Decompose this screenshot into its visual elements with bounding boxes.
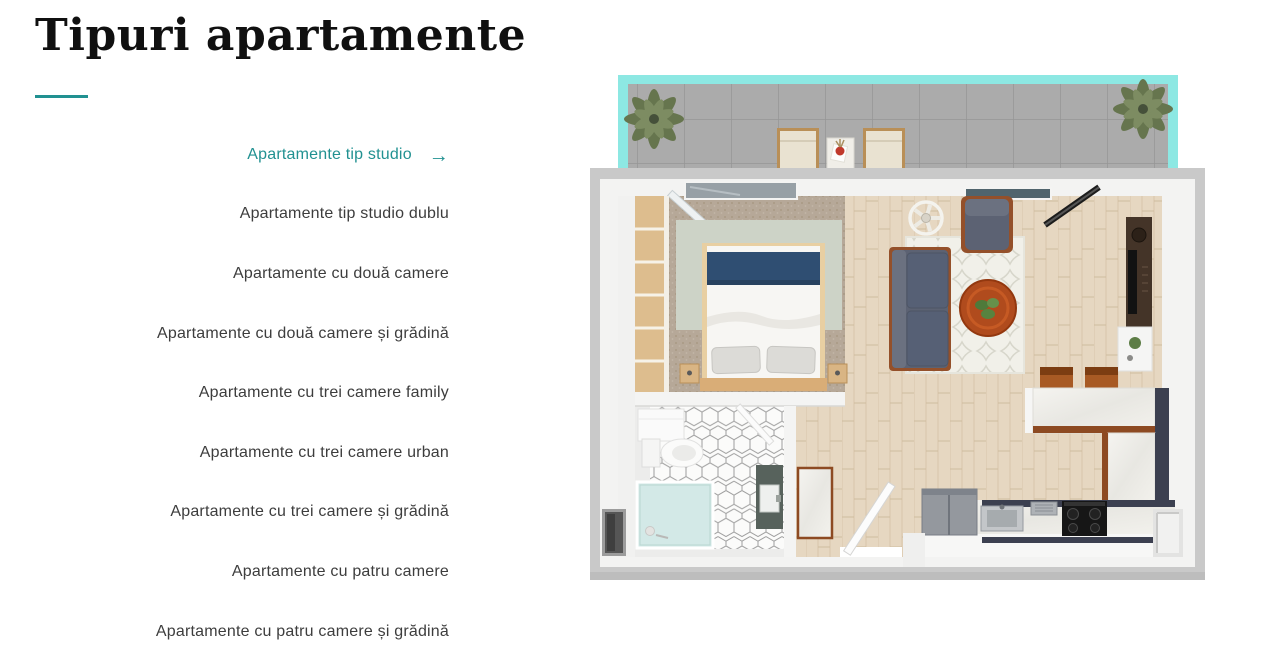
wall-niche-left — [602, 509, 626, 556]
menu-item-label: Apartamente cu trei camere și grădină — [170, 503, 449, 521]
entry-closet — [798, 468, 832, 538]
menu-item-label: Apartamente cu patru camere și grădină — [156, 623, 449, 641]
kitchen-sink — [981, 505, 1023, 532]
menu-item-studio-dublu[interactable]: Apartamente tip studio dublu — [0, 185, 449, 245]
balcony — [618, 75, 1178, 170]
balcony-table — [827, 138, 854, 170]
balcony-chair-right — [863, 128, 905, 170]
menu-item-patru-camere-gradina[interactable]: Apartamente cu patru camere și grădină — [0, 602, 449, 662]
apartment-type-list: Apartamente tip studio → Apartamente tip… — [0, 125, 449, 661]
menu-item-label: Apartamente tip studio dublu — [240, 205, 449, 223]
bedroom — [635, 196, 847, 392]
menu-item-trei-camere-urban[interactable]: Apartamente cu trei camere urban — [0, 423, 449, 483]
partition-wall-bedroom-bath — [618, 392, 845, 406]
tv-shelf-plant — [1118, 327, 1152, 371]
menu-item-label: Apartamente cu trei camere family — [199, 384, 449, 402]
menu-item-label: Apartamente tip studio — [247, 146, 412, 164]
wardrobe — [635, 196, 669, 392]
menu-item-label: Apartamente cu două camere — [233, 265, 449, 283]
menu-item-trei-camere-family[interactable]: Apartamente cu trei camere family — [0, 363, 449, 423]
menu-item-label: Apartamente cu patru camere — [232, 563, 449, 581]
toilet — [642, 439, 703, 467]
wall-niche-right — [1153, 509, 1183, 557]
menu-item-trei-camere-gradina[interactable]: Apartamente cu trei camere și grădină — [0, 483, 449, 543]
menu-item-doua-camere-gradina[interactable]: Apartamente cu două camere și grădină — [0, 304, 449, 364]
left-inner-wall — [618, 196, 635, 557]
countertop-grill — [1031, 502, 1057, 515]
bed — [700, 243, 827, 391]
floorplan-image — [590, 75, 1205, 580]
bottom-wall-step — [903, 533, 925, 567]
balcony-plant-left — [624, 89, 684, 149]
kitchen-column-counter — [1102, 433, 1169, 505]
bathroom-vanity — [756, 465, 783, 529]
apartment-type-menu: Apartamente tip studio → Apartamente tip… — [0, 125, 449, 661]
stove — [1062, 501, 1107, 536]
menu-item-doua-camere[interactable]: Apartamente cu două camere — [0, 244, 449, 304]
shower — [637, 482, 713, 548]
menu-item-label: Apartamente cu trei camere urban — [200, 444, 449, 462]
page: { "page": { "title": "Tipuri apartamente… — [0, 0, 1270, 671]
tv-console — [1126, 217, 1152, 329]
arrow-right-icon: → — [429, 146, 449, 166]
nightstand-left — [680, 364, 699, 383]
menu-item-label: Apartamente cu două camere și grădină — [157, 325, 449, 343]
coffee-table — [960, 280, 1016, 336]
kitchen-peninsula — [1025, 388, 1169, 433]
partition-wall-bath-hall — [784, 406, 796, 557]
armchair — [961, 196, 1013, 253]
balcony-plant-right — [1113, 79, 1173, 139]
balcony-chair-left — [777, 128, 819, 170]
page-title: Tipuri apartamente — [35, 10, 526, 61]
window-bedroom — [685, 182, 797, 199]
menu-item-studio[interactable]: Apartamente tip studio → — [0, 125, 449, 185]
fridge — [922, 489, 977, 535]
title-underline-accent — [35, 95, 88, 98]
washer-cabinet — [638, 409, 684, 441]
menu-item-patru-camere[interactable]: Apartamente cu patru camere — [0, 542, 449, 602]
sofa — [889, 247, 951, 371]
nightstand-right — [828, 364, 847, 383]
